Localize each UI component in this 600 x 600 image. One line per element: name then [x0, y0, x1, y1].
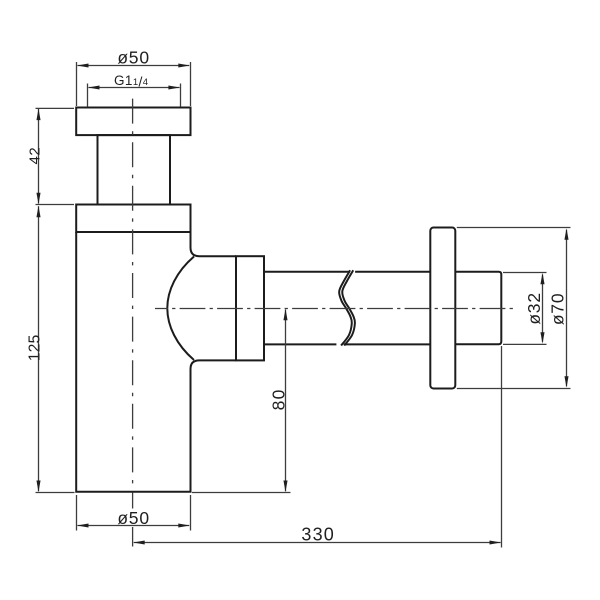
svg-text:330: 330	[301, 524, 335, 544]
svg-text:80: 80	[269, 388, 289, 410]
svg-text:ø32: ø32	[524, 292, 544, 325]
svg-text:ø50: ø50	[117, 508, 150, 528]
svg-text:125: 125	[27, 334, 44, 361]
svg-text:ø70: ø70	[548, 293, 568, 326]
svg-text:ø50: ø50	[117, 48, 150, 68]
svg-text:42: 42	[27, 147, 44, 165]
